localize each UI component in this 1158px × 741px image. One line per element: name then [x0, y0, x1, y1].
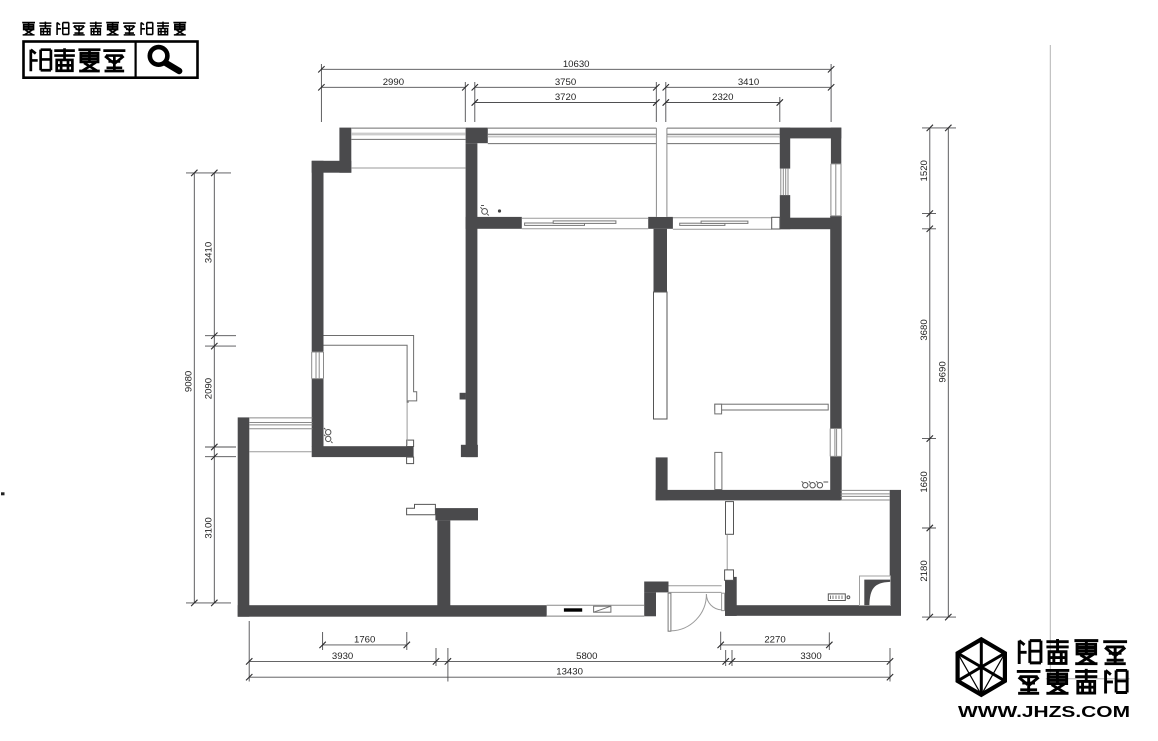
svg-text:3410: 3410 [738, 77, 759, 88]
svg-text:3930: 3930 [332, 651, 353, 662]
svg-text:2090: 2090 [204, 378, 215, 399]
svg-text:2270: 2270 [764, 634, 785, 645]
svg-text:13430: 13430 [556, 667, 583, 678]
svg-text:9690: 9690 [938, 361, 949, 382]
svg-text:3680: 3680 [919, 319, 930, 340]
svg-text:9080: 9080 [184, 371, 195, 392]
svg-text:3410: 3410 [204, 242, 215, 263]
svg-text:WWW.JHZS.COM: WWW.JHZS.COM [958, 704, 1130, 721]
svg-text:2990: 2990 [383, 77, 404, 88]
svg-text:3300: 3300 [800, 651, 821, 662]
svg-text:1520: 1520 [919, 160, 930, 181]
svg-text:3750: 3750 [555, 77, 576, 88]
svg-text:2180: 2180 [919, 560, 930, 581]
svg-text:10630: 10630 [563, 59, 590, 70]
svg-text:5800: 5800 [576, 651, 597, 662]
svg-text:2320: 2320 [712, 92, 733, 103]
svg-text:3100: 3100 [204, 517, 215, 538]
svg-text:1660: 1660 [919, 471, 930, 492]
svg-text:1760: 1760 [354, 634, 375, 645]
svg-text:3720: 3720 [555, 92, 576, 103]
